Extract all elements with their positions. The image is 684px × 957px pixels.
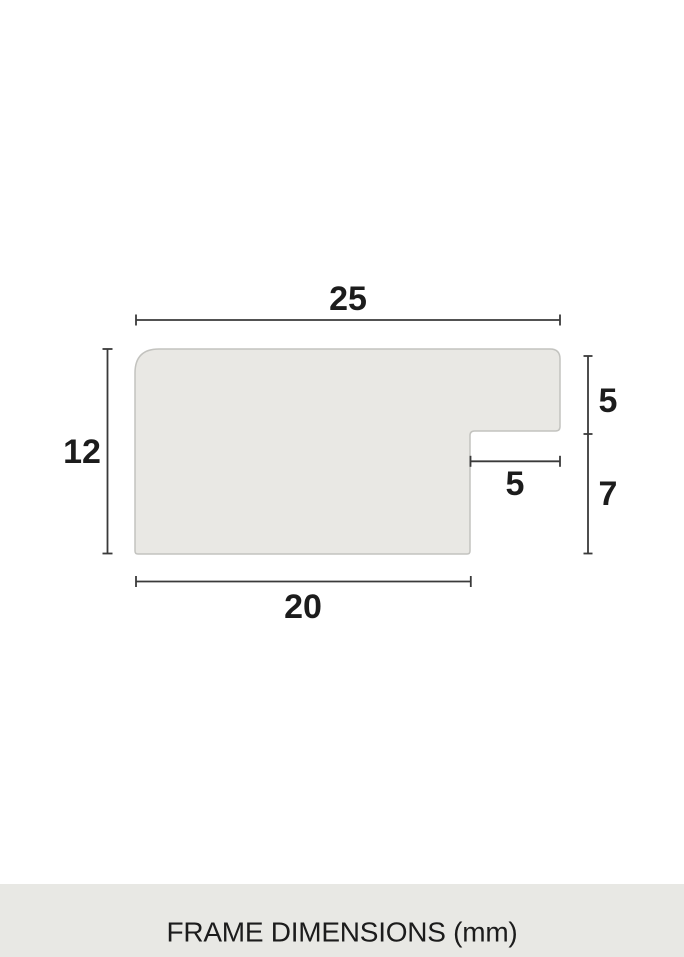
svg-text:12: 12	[63, 433, 101, 471]
svg-text:FRAME DIMENSIONS (mm): FRAME DIMENSIONS (mm)	[167, 917, 518, 948]
svg-text:7: 7	[599, 475, 618, 513]
svg-text:25: 25	[329, 280, 367, 318]
svg-text:20: 20	[284, 588, 322, 626]
svg-text:5: 5	[506, 465, 525, 503]
svg-text:5: 5	[599, 382, 618, 420]
